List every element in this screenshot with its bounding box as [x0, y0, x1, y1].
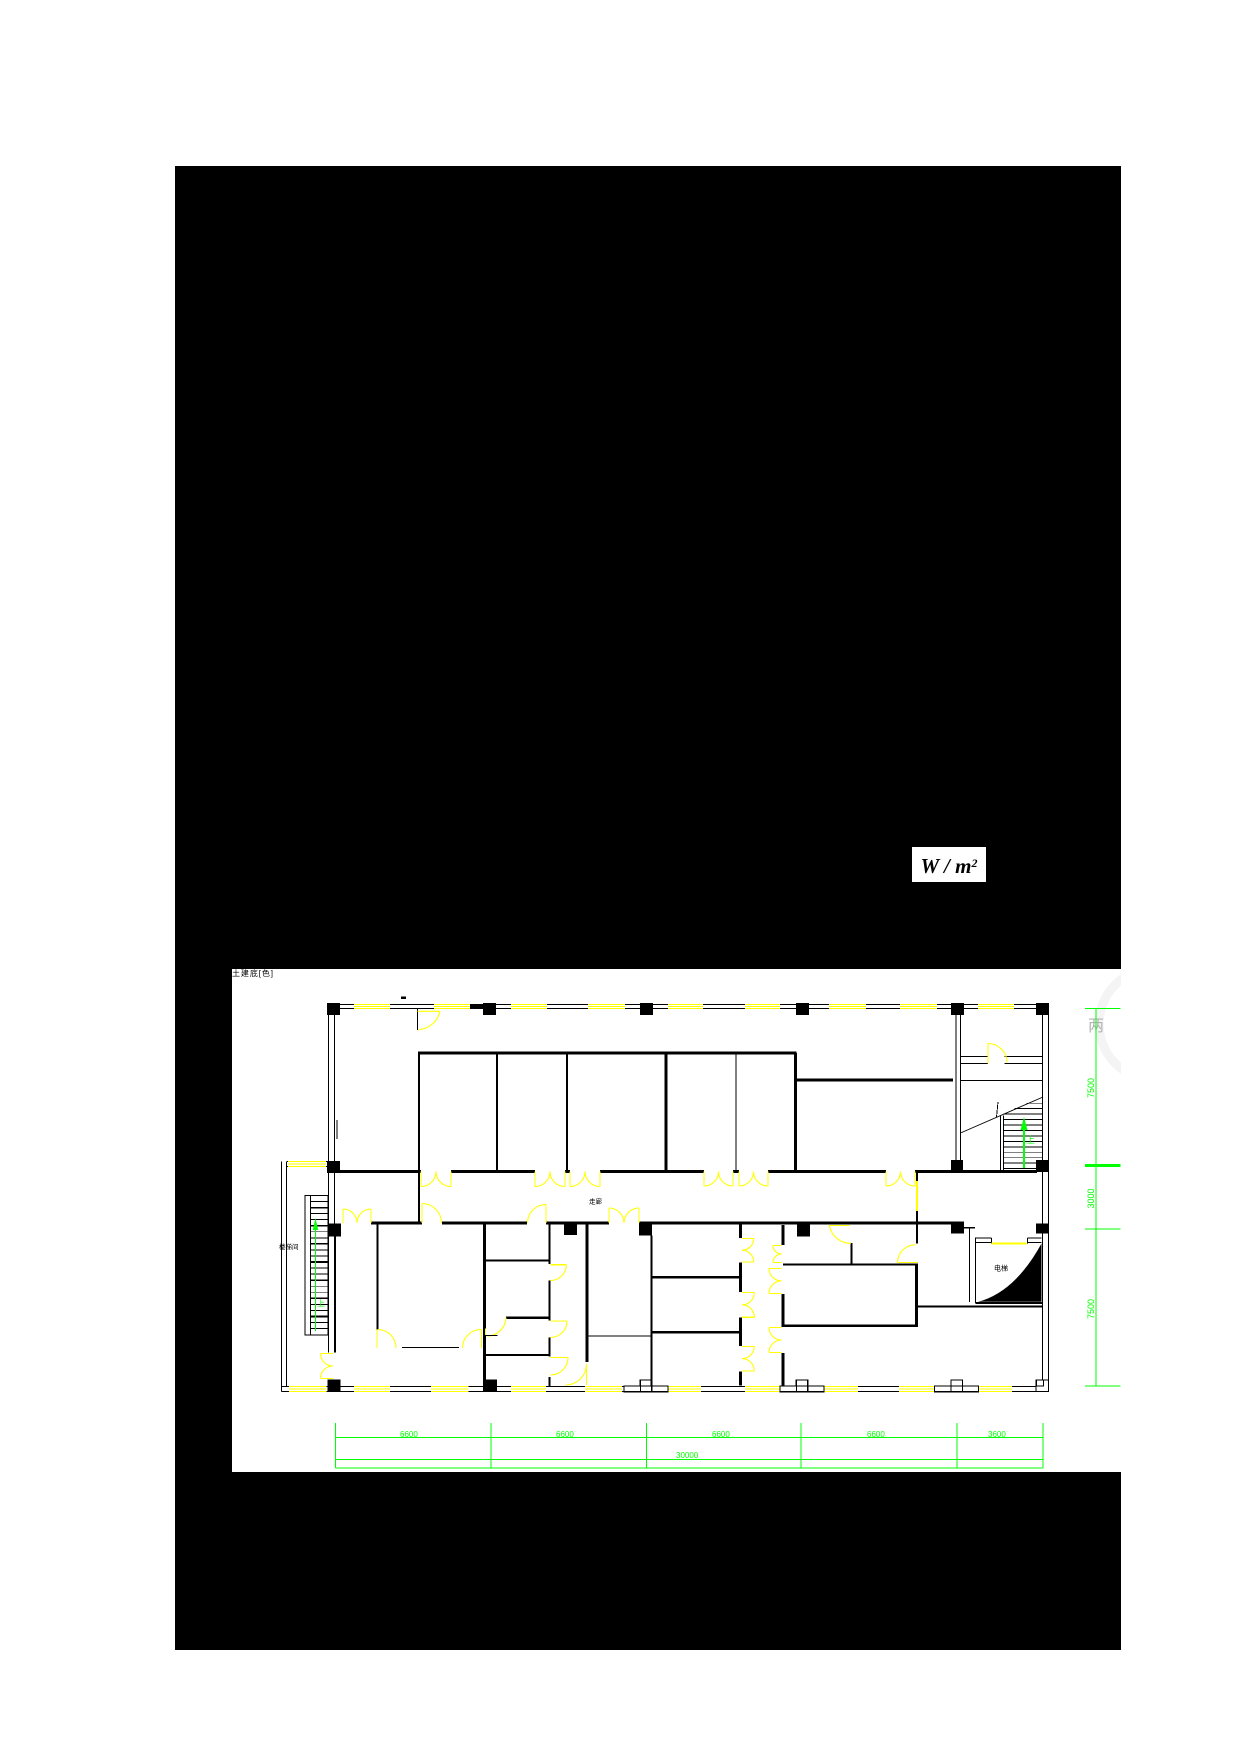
svg-text:6600: 6600: [400, 1430, 418, 1439]
svg-text:6600: 6600: [867, 1430, 885, 1439]
svg-text:3000: 3000: [1086, 1188, 1096, 1208]
svg-text:上: 上: [1026, 1135, 1035, 1145]
svg-text:土建底[色]: 土建底[色]: [232, 968, 273, 978]
svg-text:电梯: 电梯: [994, 1264, 1008, 1273]
svg-text:7500: 7500: [1086, 1299, 1096, 1319]
svg-text:7500: 7500: [1086, 1078, 1096, 1098]
svg-text:6600: 6600: [712, 1430, 730, 1439]
svg-text:走廊: 走廊: [589, 1197, 603, 1206]
svg-text:30000: 30000: [676, 1451, 699, 1460]
svg-text:上: 上: [317, 1299, 325, 1308]
svg-text:楼梯间: 楼梯间: [279, 1242, 299, 1251]
svg-text:6600: 6600: [556, 1430, 574, 1439]
svg-text:3600: 3600: [988, 1430, 1006, 1439]
